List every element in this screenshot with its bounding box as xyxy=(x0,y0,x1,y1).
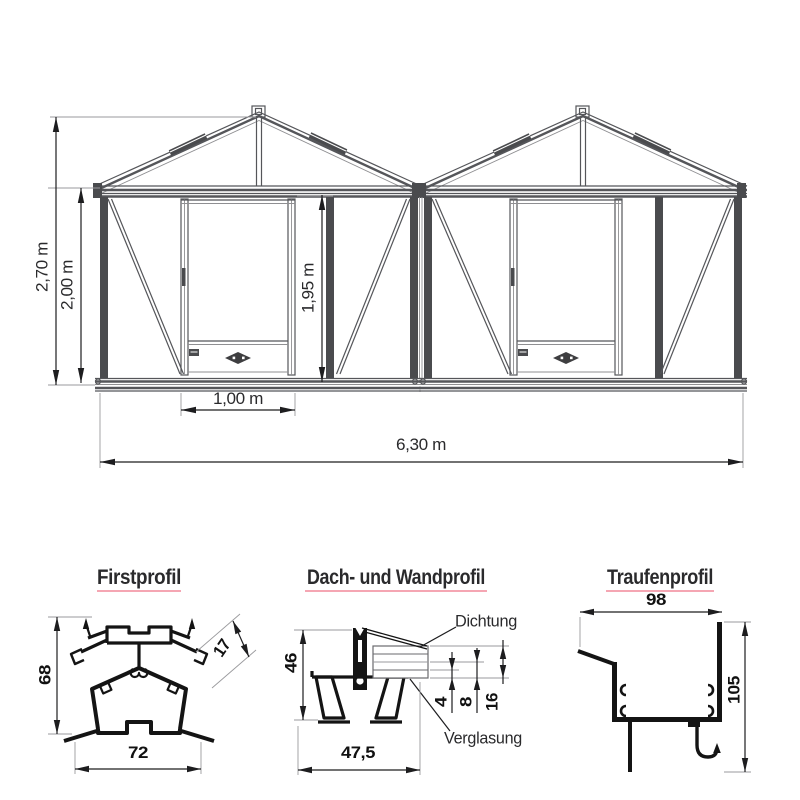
svg-text:8: 8 xyxy=(457,697,476,707)
dim-width-door: 1,00 m xyxy=(181,389,295,413)
svg-text:68: 68 xyxy=(36,665,55,685)
diagonal-brace xyxy=(664,199,734,374)
roof-glazing-bar xyxy=(310,135,346,152)
corner-post xyxy=(100,197,108,378)
svg-text:4: 4 xyxy=(432,696,451,707)
greenhouse-datasheet-drawing: 2,70 m 2,00 m 1,95 m 1,00 m xyxy=(0,0,800,800)
seal-flap xyxy=(362,628,427,646)
seal-label: Dichtung xyxy=(455,612,517,631)
firstprofil-dimensions: 68 72 17 xyxy=(36,614,257,774)
traufenprofil-title: Traufenprofil xyxy=(607,566,713,589)
sliding-door xyxy=(510,199,622,375)
dim-height-door: 1,95 m xyxy=(299,195,326,382)
door-edge-handle xyxy=(511,268,515,286)
traufenprofil-drawing xyxy=(578,622,722,772)
dim-width-total: 6,30 m xyxy=(100,435,743,465)
dach-wandprofil-drawing xyxy=(312,628,428,722)
door-edge-handle xyxy=(182,268,186,286)
corner-post xyxy=(424,197,432,378)
greenhouse-module-right xyxy=(417,106,747,391)
door-handle-icon xyxy=(225,352,251,364)
traufenprofil-dimensions: 98 105 xyxy=(580,590,751,772)
dim-height-eave: 2,00 m xyxy=(58,188,85,383)
roof-glazing-bar xyxy=(494,136,530,153)
diagonal-brace xyxy=(108,199,180,374)
svg-text:17: 17 xyxy=(209,636,234,661)
mid-post xyxy=(655,197,663,378)
svg-text:2,00 m: 2,00 m xyxy=(58,260,77,310)
firstprofil-drawing xyxy=(64,618,214,741)
firstprofil-section: Firstprofil xyxy=(36,566,257,774)
dach-wandprofil-annotations: Dichtung Verglasung xyxy=(410,612,522,748)
svg-text:72: 72 xyxy=(128,743,148,762)
elevation-drawing: 2,70 m 2,00 m 1,95 m 1,00 m xyxy=(33,106,748,468)
dach-wandprofil-section: Dach- und Wandprofil xyxy=(282,566,523,775)
svg-text:98: 98 xyxy=(646,590,666,609)
technical-drawing-svg: 2,70 m 2,00 m 1,95 m 1,00 m xyxy=(0,0,800,800)
svg-text:47,5: 47,5 xyxy=(341,743,375,762)
svg-text:46: 46 xyxy=(282,653,301,673)
glazing-panel xyxy=(373,646,428,678)
door-handle-icon xyxy=(553,352,579,364)
svg-text:16: 16 xyxy=(483,693,502,711)
roof-glazing-bar xyxy=(170,136,206,153)
glazing-label: Verglasung xyxy=(444,729,522,748)
svg-text:6,30 m: 6,30 m xyxy=(396,435,446,454)
svg-text:105: 105 xyxy=(725,676,744,704)
diagonal-brace xyxy=(432,199,508,374)
svg-text:1,00 m: 1,00 m xyxy=(213,389,263,408)
diagonal-brace xyxy=(340,199,410,374)
roof-glazing-bar xyxy=(634,135,670,152)
traufenprofil-section: Traufenprofil 98 1 xyxy=(578,566,751,772)
sliding-door xyxy=(181,199,295,375)
firstprofil-title: Firstprofil xyxy=(97,566,181,589)
greenhouse-module-left xyxy=(93,106,421,391)
corner-post xyxy=(734,197,742,378)
dach-wandprofil-title: Dach- und Wandprofil xyxy=(307,566,485,589)
dim-height-total: 2,70 m xyxy=(33,117,60,385)
svg-text:1,95 m: 1,95 m xyxy=(299,263,318,313)
mid-post xyxy=(326,197,334,378)
corner-post xyxy=(410,197,418,378)
svg-text:2,70 m: 2,70 m xyxy=(33,242,52,292)
